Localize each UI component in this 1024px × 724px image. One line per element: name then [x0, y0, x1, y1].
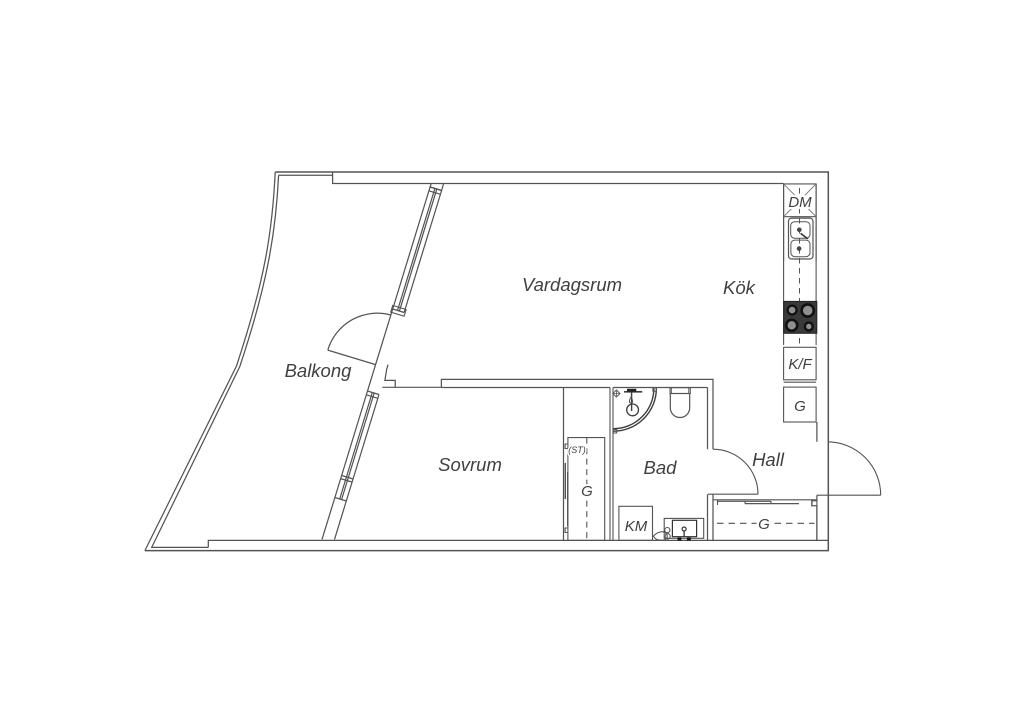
- svg-text:G: G: [758, 516, 770, 533]
- svg-text:DM: DM: [788, 194, 812, 211]
- svg-text:Bad: Bad: [644, 457, 678, 478]
- svg-text:Kök: Kök: [723, 277, 757, 298]
- svg-text:Vardagsrum: Vardagsrum: [522, 274, 622, 295]
- svg-text:(ST): (ST): [568, 445, 586, 455]
- svg-text:KM: KM: [625, 518, 648, 535]
- svg-text:Balkong: Balkong: [285, 360, 353, 381]
- svg-text:Sovrum: Sovrum: [438, 454, 502, 475]
- svg-text:G: G: [794, 398, 806, 415]
- svg-text:K/F: K/F: [788, 356, 812, 373]
- svg-text:G: G: [581, 483, 593, 500]
- svg-text:Hall: Hall: [752, 449, 785, 470]
